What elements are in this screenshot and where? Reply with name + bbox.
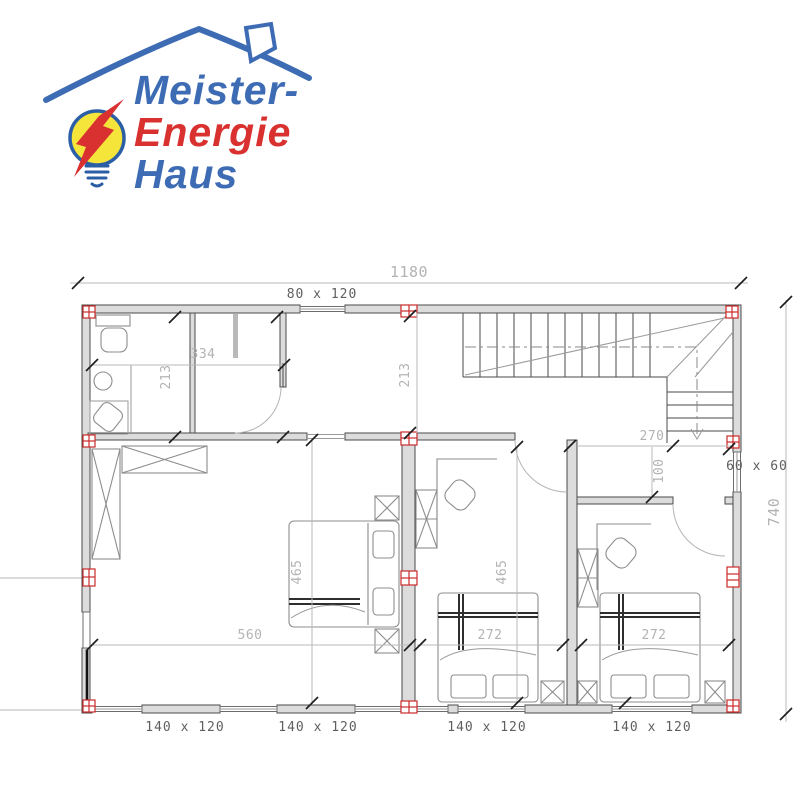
chimney-icon: [246, 24, 275, 61]
desk-1: [437, 459, 497, 548]
wardrobe-top: [122, 446, 207, 473]
dim-overall-height: 740: [765, 498, 783, 527]
dim-child2-width: 272: [642, 628, 667, 643]
door-arc-dressing: [235, 387, 281, 433]
dim-living-depth: 465: [290, 560, 305, 585]
bed-2: [600, 593, 700, 702]
dim-bathroom-width: 334: [191, 347, 216, 362]
window-label-bottom-2: 140 x 120: [278, 720, 357, 735]
washbasin-icon: [94, 372, 112, 390]
window-label-bottom-1: 140 x 120: [145, 720, 224, 735]
page-canvas: Meister- Energie Haus: [0, 0, 800, 800]
shower-icon: [90, 400, 128, 434]
corner-box-1: [541, 681, 564, 703]
chair-1: [442, 477, 479, 514]
dim-corridor-depth: 100: [652, 459, 667, 484]
double-bed: [289, 521, 399, 627]
window-label-bottom-4: 140 x 120: [612, 720, 691, 735]
logo-word-3: Haus: [134, 151, 238, 197]
window-label-right: 60 x 60: [726, 459, 788, 474]
bed-1: [438, 593, 538, 702]
toilet-icon: [96, 315, 130, 352]
dimension-labels: 1180 740 80 x 120 60 x 60 140 x 120 140 …: [145, 263, 788, 735]
staircase: [463, 313, 733, 443]
window-left-small: [83, 612, 90, 648]
nightstand-top: [375, 496, 399, 520]
window-label-top: 80 x 120: [287, 287, 358, 302]
dim-living-width: 560: [238, 628, 263, 643]
corner-box-2a: [578, 681, 597, 703]
window-label-bottom-3: 140 x 120: [447, 720, 526, 735]
dim-hall-top-depth: 213: [398, 363, 413, 388]
nightstand-bottom: [375, 629, 399, 653]
lightbulb-icon: [70, 99, 124, 186]
door-arc-child2: [673, 504, 725, 556]
dim-overall-width: 1180: [390, 263, 428, 281]
closet-bar: [233, 314, 238, 358]
window-top: [300, 307, 345, 312]
corner-box-2b: [705, 681, 725, 703]
exterior-reference-lines: [0, 578, 82, 710]
dimension-ticks: [72, 277, 792, 720]
logo-word-2: Energie: [134, 109, 291, 155]
dim-child1-depth: 465: [495, 560, 510, 585]
floor-plan: 1180 740 80 x 120 60 x 60 140 x 120 140 …: [0, 263, 792, 735]
logo-word-1: Meister-: [134, 67, 299, 113]
wardrobe-left: [92, 449, 120, 559]
door-arc-child1: [515, 440, 567, 492]
dim-stair-hall-width: 270: [640, 429, 665, 444]
wardrobe-1: [416, 490, 437, 548]
desk-2: [597, 524, 651, 590]
wardrobe-2: [578, 549, 598, 607]
child-room-1-furniture: [416, 459, 564, 703]
chair-2: [603, 535, 640, 572]
stair-walk-line: [465, 347, 697, 438]
living-room-furniture: [92, 446, 399, 653]
company-logo: Meister- Energie Haus: [46, 24, 309, 197]
dimension-lines: [70, 283, 786, 722]
dim-child1-width: 272: [478, 628, 503, 643]
dim-bathroom-depth: 213: [159, 365, 174, 390]
